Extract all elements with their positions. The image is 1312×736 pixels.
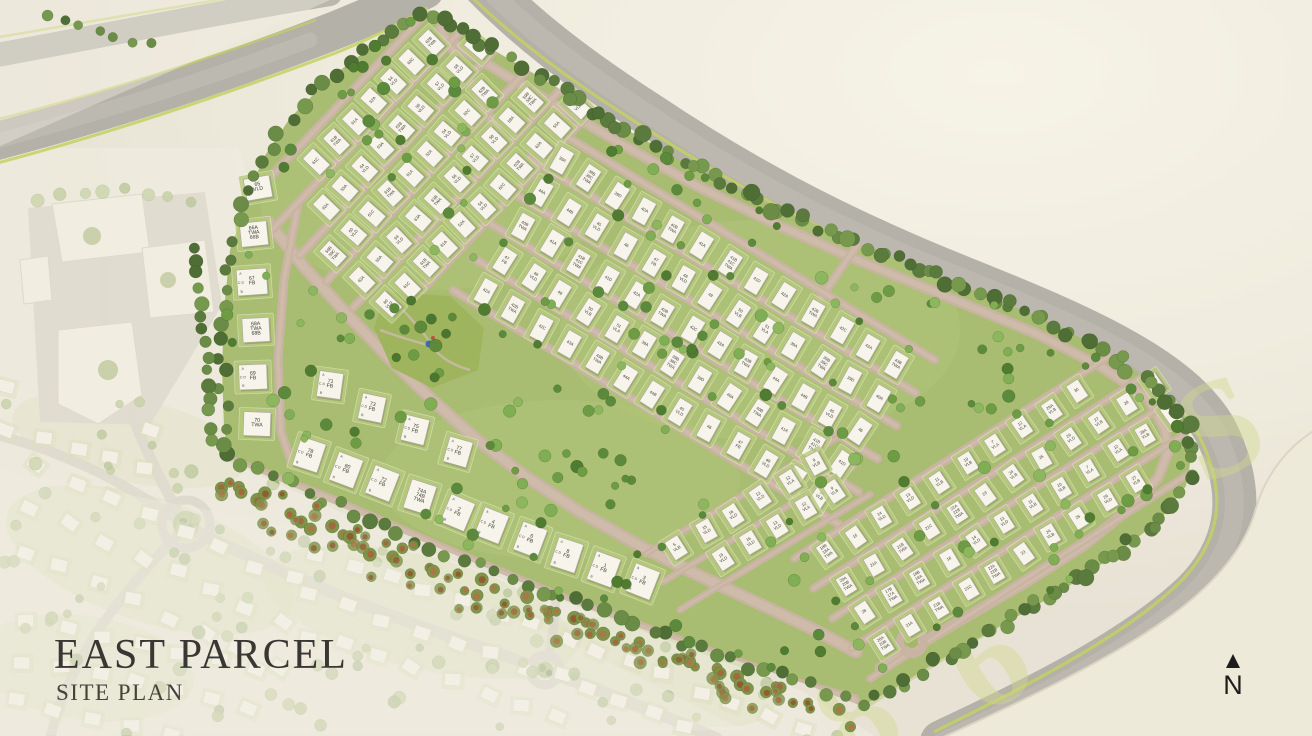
tree-icon <box>618 301 628 311</box>
tree-icon <box>951 277 966 292</box>
tree-icon <box>1150 522 1161 533</box>
tree-icon <box>429 339 442 352</box>
tree-icon <box>530 553 538 561</box>
tree-icon <box>608 121 621 134</box>
tree-icon <box>622 475 629 482</box>
tree-icon <box>598 448 608 458</box>
tree-icon <box>554 587 562 595</box>
tree-icon <box>1120 533 1132 545</box>
tree-icon <box>421 509 431 519</box>
tree-icon <box>710 319 719 328</box>
tree-icon <box>200 336 212 348</box>
tree-icon <box>755 207 762 214</box>
tree-icon <box>915 396 925 406</box>
page-subtitle: SITE PLAN <box>56 680 184 705</box>
tree-foliage <box>773 689 778 694</box>
tree-icon <box>147 38 157 48</box>
tree-icon <box>815 646 826 657</box>
tree-icon <box>74 21 83 30</box>
tree-foliage <box>526 608 531 613</box>
tree-icon <box>1173 487 1185 499</box>
tree-icon <box>381 56 391 66</box>
tree-icon <box>1027 594 1038 605</box>
tree-icon <box>611 482 619 490</box>
tree-icon <box>336 313 347 324</box>
tree-icon <box>815 476 827 488</box>
tree-icon <box>406 17 416 27</box>
tree-icon <box>194 296 209 311</box>
tree-icon <box>279 162 290 173</box>
tree-foliage <box>744 686 750 692</box>
tree-icon <box>388 173 396 181</box>
tree-foliage <box>791 700 796 705</box>
tree-icon <box>1082 334 1098 350</box>
tree-icon <box>905 259 917 271</box>
tree-icon <box>778 401 786 409</box>
tree-icon <box>968 400 975 407</box>
tree-icon <box>514 398 523 407</box>
tree-foliage <box>491 585 496 590</box>
tree-icon <box>593 286 604 297</box>
tree-icon <box>1075 530 1083 538</box>
tree-icon <box>463 539 474 550</box>
tree-icon <box>435 515 444 524</box>
tree-foliage <box>430 568 437 575</box>
tree-icon <box>760 389 772 401</box>
tree-icon <box>502 505 509 512</box>
tree-icon <box>583 405 594 416</box>
tree-icon <box>702 215 711 224</box>
tree-icon <box>743 184 760 201</box>
tree-icon <box>615 454 627 466</box>
tree-icon <box>1157 394 1172 409</box>
tree-icon <box>297 319 305 327</box>
tree-icon <box>767 663 776 672</box>
tree-icon <box>539 450 551 462</box>
tree-icon <box>406 296 415 305</box>
tree-icon <box>697 331 707 341</box>
tree-icon <box>659 336 669 346</box>
tree-icon <box>1182 436 1194 448</box>
tree-icon <box>330 69 344 83</box>
tree-icon <box>594 405 603 414</box>
tree-icon <box>351 438 362 449</box>
tree-icon <box>460 199 467 206</box>
tree-icon <box>672 337 683 348</box>
tree-icon <box>206 434 218 446</box>
tree-icon <box>748 239 756 247</box>
tree-icon <box>422 542 436 556</box>
tree-icon <box>400 325 410 335</box>
tree-icon <box>533 340 541 348</box>
tree-icon <box>427 54 438 65</box>
tree-icon <box>424 397 437 410</box>
tree-icon <box>499 330 507 338</box>
lot: 70TWA <box>238 407 275 440</box>
tree-icon <box>1126 384 1137 395</box>
tree-icon <box>562 449 570 457</box>
tree-icon <box>356 43 368 55</box>
tree-icon <box>839 231 855 247</box>
tree-icon <box>486 441 495 450</box>
tree-icon <box>1118 506 1126 514</box>
tree-icon <box>245 251 252 258</box>
tree-icon <box>963 546 974 557</box>
tree-icon <box>661 425 670 434</box>
tree-icon <box>196 323 207 334</box>
tree-icon <box>650 627 662 639</box>
tree-icon <box>982 624 995 637</box>
site-plan-map: S68 65VLD66ATWA66B67FBAC DB68ATWA68B69FB… <box>0 0 1312 736</box>
tree-icon <box>878 664 887 673</box>
tree-icon <box>216 437 231 452</box>
tree-icon <box>786 518 793 525</box>
tree-icon <box>693 199 701 207</box>
tree-icon <box>189 265 202 278</box>
tree-icon <box>1045 419 1053 427</box>
tree-icon <box>1091 353 1100 362</box>
tree-icon <box>349 63 359 73</box>
tree-icon <box>786 674 798 686</box>
tree-icon <box>837 428 848 439</box>
tree-icon <box>866 576 874 584</box>
tree-icon <box>309 286 318 295</box>
tree-icon <box>698 499 709 510</box>
tree-icon <box>430 373 440 383</box>
tree-icon <box>726 183 737 194</box>
tree-icon <box>896 404 905 413</box>
tree-foliage <box>408 571 414 577</box>
tree-foliage <box>599 631 606 638</box>
tree-icon <box>726 272 734 280</box>
tree-icon <box>1049 554 1060 565</box>
tree-icon <box>503 405 516 418</box>
tree-icon <box>1058 328 1072 342</box>
tree-icon <box>657 349 667 359</box>
tree-foliage <box>259 502 266 509</box>
tree-icon <box>1145 376 1157 388</box>
tree-icon <box>933 623 941 631</box>
tree-icon <box>1121 494 1134 507</box>
tree-foliage <box>676 657 682 663</box>
tree-foliage <box>463 588 468 593</box>
tree-icon <box>763 203 780 220</box>
lot: 68ATWA68B <box>237 313 275 347</box>
tree-icon <box>466 29 481 44</box>
tree-icon <box>708 270 719 281</box>
tree-icon <box>800 553 809 562</box>
tree-icon <box>677 241 685 249</box>
tree-icon <box>227 236 238 247</box>
lot: 69FBAC DB <box>234 360 272 394</box>
tree-icon <box>553 385 561 393</box>
tree-icon <box>1185 451 1197 463</box>
tree-foliage <box>624 646 629 651</box>
tree-icon <box>640 301 651 312</box>
tree-icon <box>683 636 695 648</box>
tree-foliage <box>288 533 294 539</box>
tree-icon <box>796 208 810 222</box>
tree-icon <box>430 245 440 255</box>
tree-icon <box>848 453 860 465</box>
tree-foliage <box>238 489 244 495</box>
tree-icon <box>858 700 869 711</box>
tree-icon <box>219 363 233 377</box>
tree-icon <box>646 231 656 241</box>
tree-foliage <box>775 697 781 703</box>
tree-foliage <box>499 610 505 616</box>
tree-icon <box>1077 569 1094 586</box>
tree-icon <box>389 303 399 313</box>
tree-icon <box>840 691 851 702</box>
tree-icon <box>467 529 479 541</box>
tree-icon <box>621 579 631 589</box>
tree-foliage <box>689 652 694 657</box>
tree-foliage <box>384 541 389 546</box>
tree-icon <box>375 130 384 139</box>
tree-icon <box>1002 390 1015 403</box>
tree-icon <box>1016 344 1024 352</box>
tree-icon <box>829 379 836 386</box>
tree-foliage <box>717 684 722 689</box>
tree-icon <box>696 640 708 652</box>
tree-icon <box>426 314 436 324</box>
tree-foliage <box>553 638 560 645</box>
tree-icon <box>883 285 895 297</box>
tree-icon <box>305 365 317 377</box>
tree-icon <box>537 587 551 601</box>
tree-icon <box>614 610 629 625</box>
tree-icon <box>214 332 228 346</box>
tree-icon <box>363 115 375 127</box>
tree-icon <box>708 392 717 401</box>
tree-foliage <box>311 513 318 520</box>
tree-icon <box>978 461 991 474</box>
tree-icon <box>823 426 833 436</box>
tree-foliage <box>574 630 580 636</box>
tree-icon <box>552 472 563 483</box>
tree-icon <box>734 348 745 359</box>
tree-foliage <box>269 530 274 535</box>
tree-icon <box>347 89 355 97</box>
tree-icon <box>1117 350 1129 362</box>
tree-icon <box>438 550 450 562</box>
tree-icon <box>267 394 280 407</box>
tree-icon <box>392 353 401 362</box>
tree-icon <box>861 243 874 256</box>
tree-icon <box>221 309 233 321</box>
tree-icon <box>536 517 547 528</box>
tree-icon <box>443 208 454 219</box>
tree-icon <box>1182 416 1199 433</box>
tree-icon <box>1032 310 1046 324</box>
tree-icon <box>1107 550 1119 562</box>
tree-icon <box>993 331 1004 342</box>
tree-icon <box>365 309 375 319</box>
tree-icon <box>222 285 232 295</box>
tree-icon <box>714 177 726 189</box>
tree-icon <box>385 25 399 39</box>
tree-icon <box>929 297 940 308</box>
tree-foliage <box>848 724 854 730</box>
tree-foliage <box>228 480 233 485</box>
tree-icon <box>202 365 212 375</box>
tree-icon <box>233 196 249 212</box>
tree-icon <box>543 174 553 184</box>
tree-icon <box>701 174 709 182</box>
tree-icon <box>1176 461 1185 470</box>
tree-icon <box>288 114 300 126</box>
tree-icon <box>820 688 833 701</box>
tree-icon <box>905 345 913 353</box>
tree-icon <box>765 537 776 548</box>
tree-foliage <box>554 609 559 614</box>
tree-icon <box>606 396 616 406</box>
tree-foliage <box>473 605 478 610</box>
tree-foliage <box>445 576 450 581</box>
tree-icon <box>1061 500 1071 510</box>
tree-foliage <box>456 572 461 577</box>
tree-icon <box>96 26 105 35</box>
tree-icon <box>344 333 354 343</box>
tree-foliage <box>613 640 618 645</box>
tree-foliage <box>262 490 269 497</box>
tree-icon <box>974 403 984 413</box>
tree-icon <box>251 461 264 474</box>
tree-foliage <box>355 527 360 532</box>
tree-icon <box>441 329 450 338</box>
tree-foliage <box>632 646 638 652</box>
tree-icon <box>545 504 558 517</box>
tree-foliage <box>351 541 357 547</box>
tree-icon <box>202 403 215 416</box>
tree-icon <box>347 510 360 523</box>
tree-icon <box>499 239 507 247</box>
tree-icon <box>780 646 789 655</box>
tree-icon <box>1082 363 1089 370</box>
tree-icon <box>606 499 616 509</box>
tree-icon <box>776 666 788 678</box>
tree-icon <box>408 349 419 360</box>
tree-icon <box>788 574 800 586</box>
tree-foliage <box>368 575 373 580</box>
tree-foliage <box>711 676 718 683</box>
tree-icon <box>489 566 500 577</box>
tree-icon <box>487 96 499 108</box>
tree-icon <box>684 171 694 181</box>
tree-icon <box>226 255 237 266</box>
tree-foliage <box>367 551 374 558</box>
tree-foliage <box>407 583 412 588</box>
lot: 67FBAC DB <box>231 264 272 301</box>
tree-icon <box>977 345 986 354</box>
tree-icon <box>888 395 897 404</box>
tree-icon <box>1169 440 1181 452</box>
tree-icon <box>478 303 490 315</box>
tree-icon <box>894 250 905 261</box>
tree-icon <box>204 422 217 435</box>
tree-icon <box>1046 586 1053 593</box>
tree-icon <box>458 145 466 153</box>
tree-foliage <box>314 503 319 508</box>
tree-icon <box>896 673 910 687</box>
tree-foliage <box>474 593 480 599</box>
tree-foliage <box>457 607 462 612</box>
tree-foliage <box>329 522 336 529</box>
tree-icon <box>813 226 824 237</box>
tree-foliage <box>722 695 728 701</box>
tree-icon <box>661 270 671 280</box>
tree-icon <box>1019 306 1029 316</box>
lot-corner-letter: C D <box>238 281 245 285</box>
tree-icon <box>476 558 486 568</box>
tree-icon <box>930 265 943 278</box>
tree-icon <box>516 497 527 508</box>
tree-icon <box>320 419 332 431</box>
tree-foliage <box>542 607 547 612</box>
tree-foliage <box>545 617 550 622</box>
tree-icon <box>634 125 651 142</box>
tree-icon <box>815 271 828 284</box>
tree-foliage <box>523 593 530 600</box>
tree-icon <box>1003 294 1016 307</box>
tree-icon <box>648 163 659 174</box>
tree-icon <box>1135 394 1143 402</box>
tree-foliage <box>646 648 652 654</box>
tree-foliage <box>311 545 317 551</box>
tree-icon <box>643 282 655 294</box>
tree-icon <box>314 75 330 91</box>
tree-icon <box>338 90 347 99</box>
tree-icon <box>710 649 724 663</box>
tree-icon <box>221 424 231 434</box>
tree-icon <box>1005 609 1017 621</box>
tree-icon <box>1012 409 1021 418</box>
tree-icon <box>282 472 294 484</box>
tree-icon <box>243 185 253 195</box>
tree-icon <box>851 622 859 630</box>
tree-icon <box>1047 349 1054 356</box>
tree-icon <box>508 574 519 585</box>
tree-icon <box>362 135 372 145</box>
tree-icon <box>687 344 697 354</box>
tree-icon <box>612 209 624 221</box>
tree-foliage <box>219 491 226 498</box>
tree-icon <box>507 52 517 62</box>
tree-icon <box>767 362 775 370</box>
tree-icon <box>469 253 477 261</box>
tree-icon <box>805 676 816 687</box>
tree-foliage <box>511 608 518 615</box>
tree-icon <box>524 193 536 205</box>
tree-icon <box>1186 471 1200 485</box>
tree-icon <box>825 224 838 237</box>
tree-icon <box>301 435 308 442</box>
tree-icon <box>851 284 859 292</box>
tree-icon <box>1003 347 1012 356</box>
tree-icon <box>1050 543 1058 551</box>
tree-icon <box>1047 321 1061 335</box>
tree-icon <box>285 144 297 156</box>
tree-icon <box>337 335 344 342</box>
tree-icon <box>699 511 706 518</box>
lot: 73FBAC DB <box>352 388 391 428</box>
tree-icon <box>458 554 471 567</box>
tree-icon <box>234 212 249 227</box>
tree-icon <box>395 411 407 423</box>
tree-icon <box>268 126 283 141</box>
tree-icon <box>781 203 795 217</box>
